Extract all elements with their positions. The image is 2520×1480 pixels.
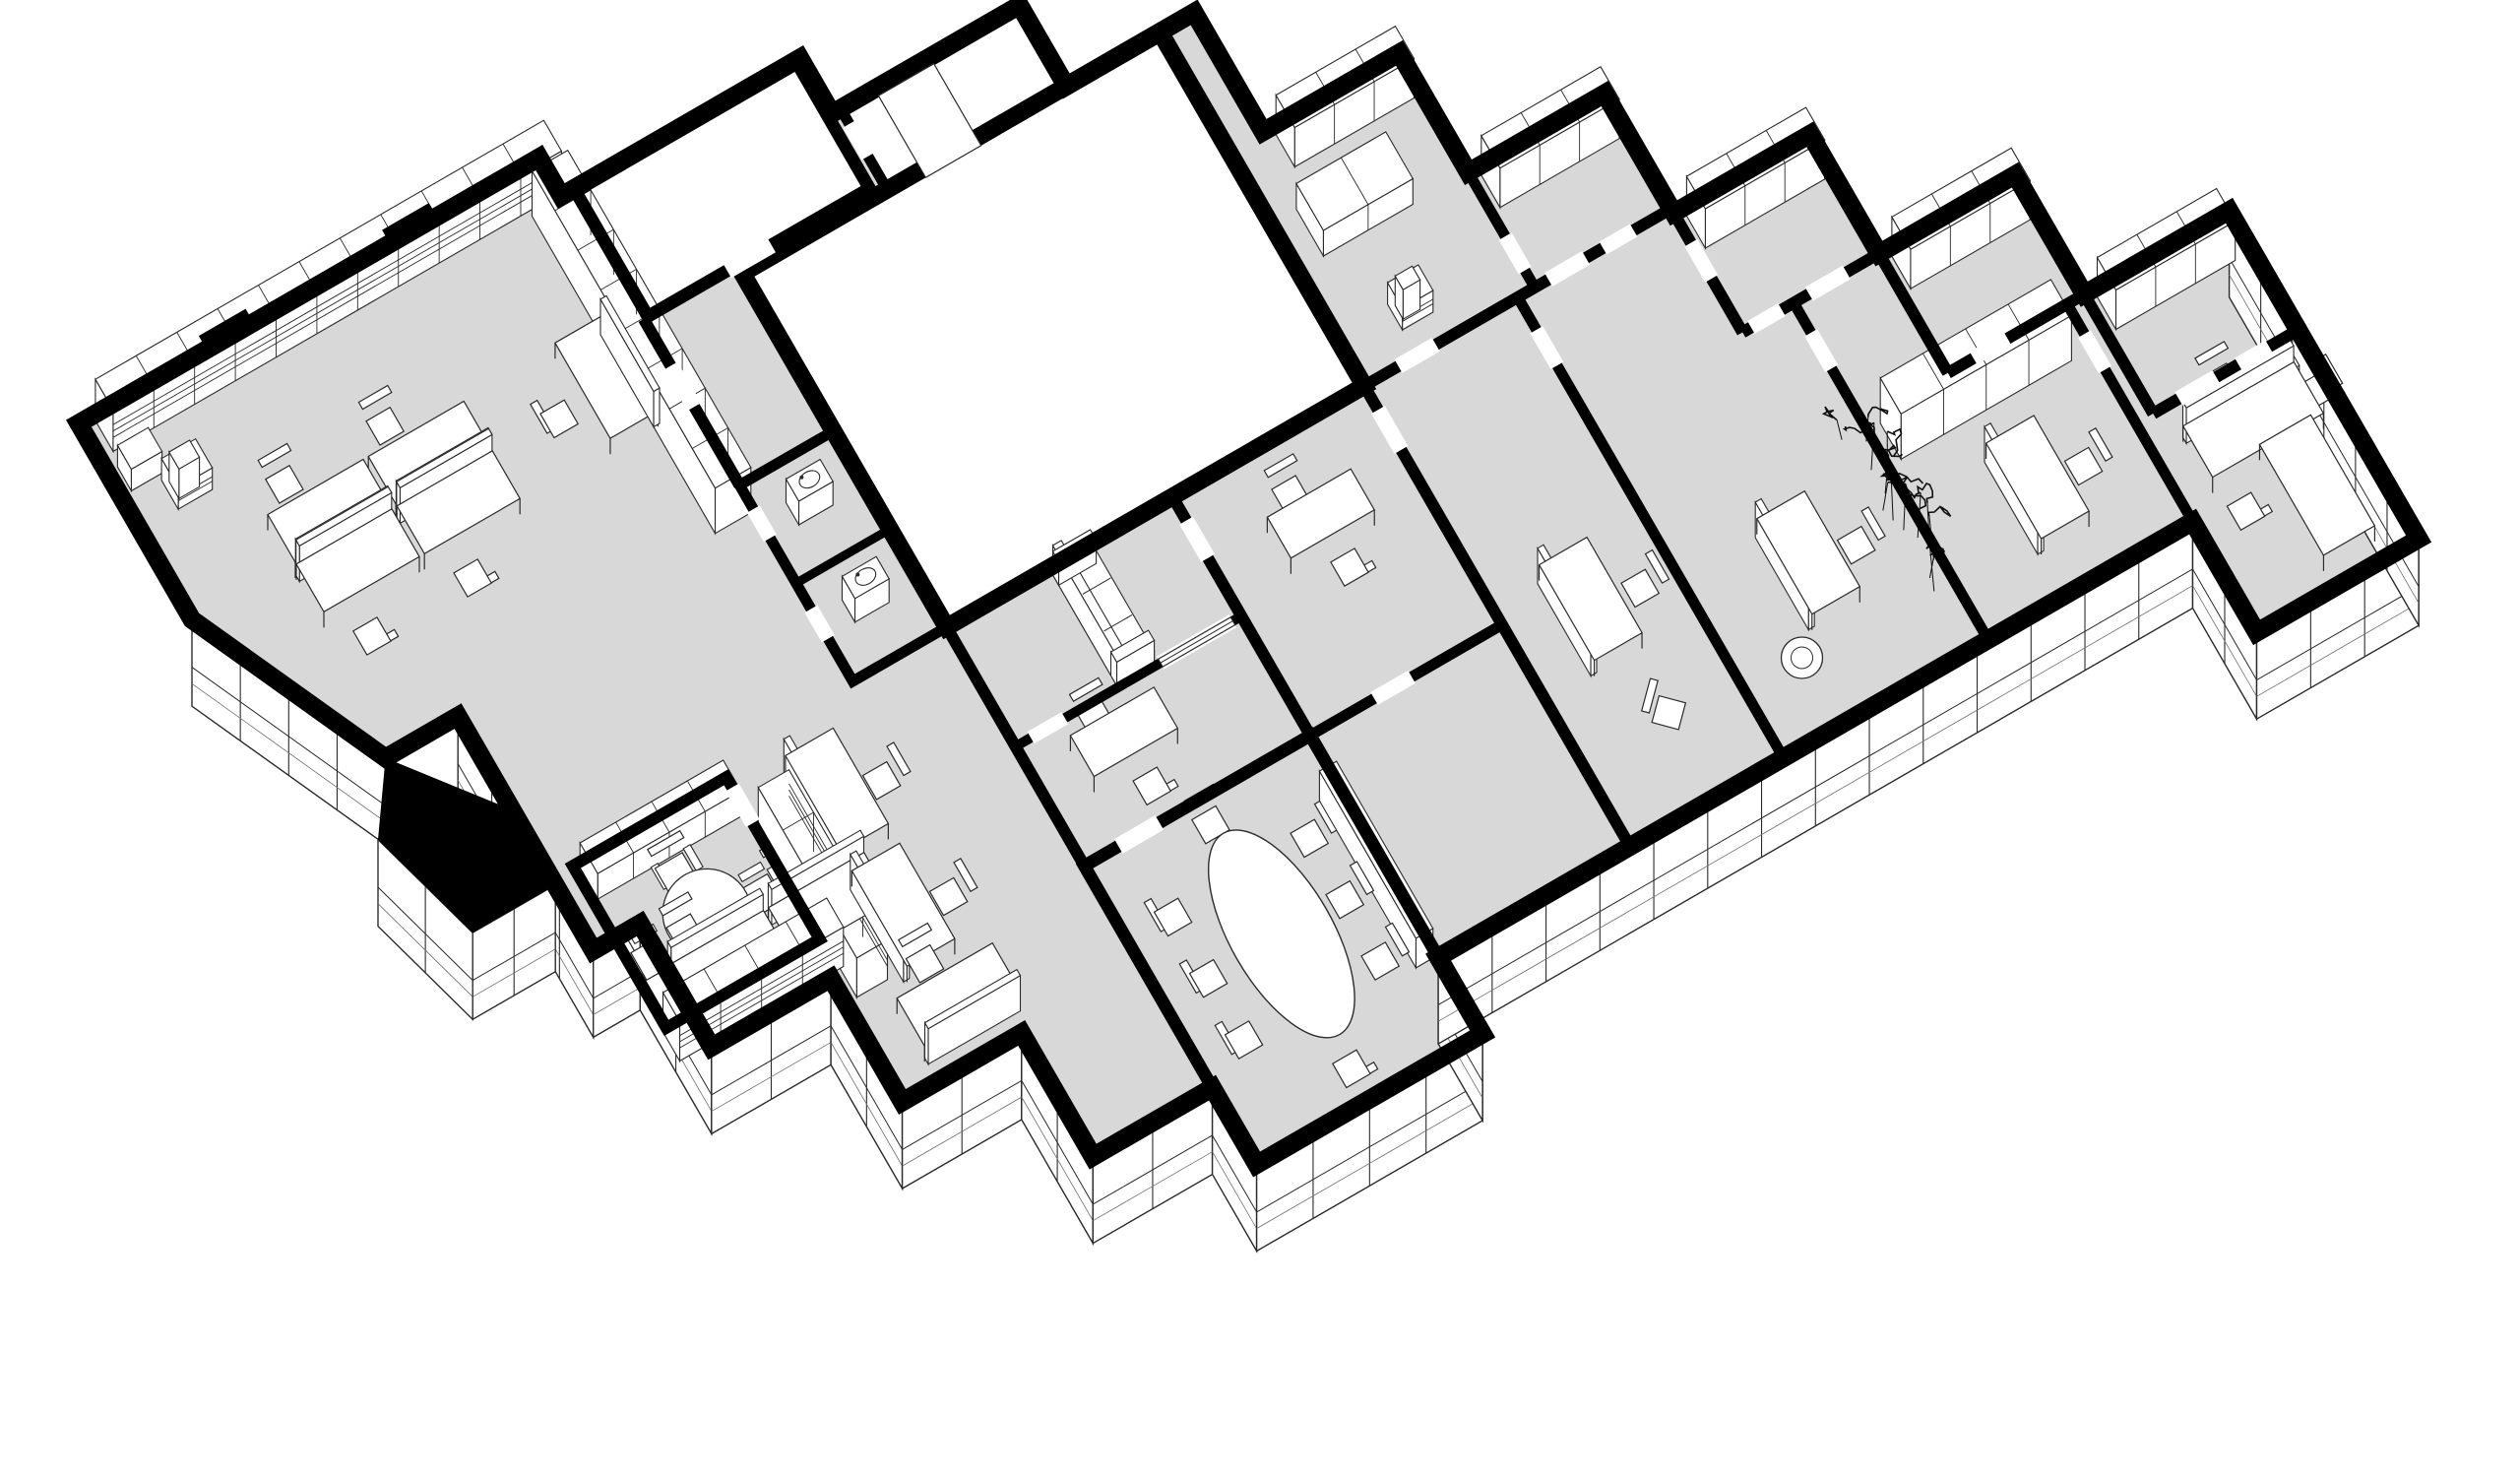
drawing-canvas — [0, 0, 2520, 1480]
box-face — [654, 388, 660, 427]
lounge-seat — [1792, 647, 1813, 669]
axonometric-floor-plan — [0, 0, 2520, 1480]
lounge-chair — [1782, 637, 1823, 678]
box-face — [925, 1023, 929, 1064]
faucet — [855, 573, 859, 577]
faucet — [799, 476, 803, 480]
